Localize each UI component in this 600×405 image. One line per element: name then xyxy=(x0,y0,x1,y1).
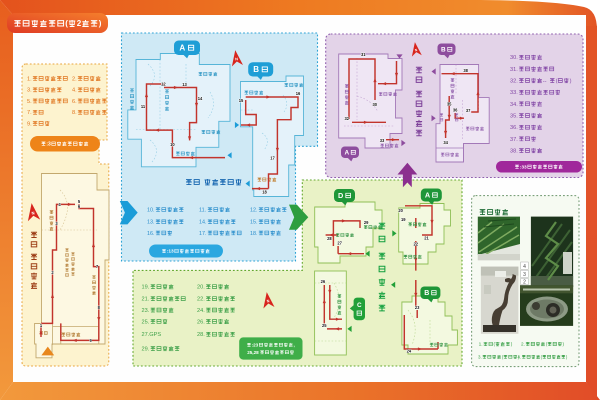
svg-text:16: 16 xyxy=(296,91,301,96)
svg-text::3: :3 xyxy=(46,142,51,148)
svg-text:36: 36 xyxy=(453,107,458,112)
svg-text:8.: 8. xyxy=(72,110,77,116)
svg-text:1.: 1. xyxy=(27,76,32,82)
svg-text:9.: 9. xyxy=(27,121,32,127)
svg-text:1.: 1. xyxy=(479,342,483,348)
svg-text:B: B xyxy=(424,290,429,297)
svg-text:23.: 23. xyxy=(142,308,150,314)
svg-text:38: 38 xyxy=(463,68,468,73)
svg-text:B: B xyxy=(441,47,446,54)
svg-text::13: :13 xyxy=(167,249,174,255)
svg-text:): ) xyxy=(570,79,572,85)
svg-text:34.: 34. xyxy=(510,102,518,108)
svg-text:17: 17 xyxy=(270,156,275,161)
svg-text:35: 35 xyxy=(447,101,452,106)
svg-text:30.: 30. xyxy=(510,55,518,61)
svg-text:4.: 4. xyxy=(72,88,77,94)
svg-text:6.: 6. xyxy=(72,99,77,105)
svg-text:(: ( xyxy=(556,79,558,85)
svg-text:14: 14 xyxy=(198,96,203,101)
svg-text:20: 20 xyxy=(398,208,403,213)
svg-text:4: 4 xyxy=(523,264,526,270)
svg-text:13.: 13. xyxy=(147,220,155,226)
svg-text:18.: 18. xyxy=(250,231,258,237)
svg-text:12: 12 xyxy=(161,82,166,87)
svg-text:32: 32 xyxy=(345,116,350,121)
svg-text:38.: 38. xyxy=(510,149,518,155)
svg-text::33: :33 xyxy=(520,165,527,171)
svg-text:29: 29 xyxy=(364,220,369,225)
svg-text:(: ( xyxy=(65,19,68,28)
svg-text:23: 23 xyxy=(415,305,420,310)
svg-text:33.: 33. xyxy=(510,90,518,96)
svg-text:7.: 7. xyxy=(27,110,32,116)
svg-text:25: 25 xyxy=(322,323,327,328)
svg-text:,: , xyxy=(294,343,295,348)
svg-text:25.: 25. xyxy=(142,319,150,325)
svg-text:37: 37 xyxy=(466,108,471,113)
svg-text:16.: 16. xyxy=(147,231,155,237)
svg-text:36.: 36. xyxy=(510,125,518,131)
svg-text:35.: 35. xyxy=(510,114,518,120)
svg-text:34: 34 xyxy=(443,140,448,145)
svg-text:3: 3 xyxy=(523,272,526,278)
svg-text:): ) xyxy=(99,19,102,28)
svg-text:C: C xyxy=(357,302,362,309)
svg-text:22: 22 xyxy=(414,242,419,247)
svg-text:2.: 2. xyxy=(521,342,525,347)
svg-text:13: 13 xyxy=(182,82,187,87)
svg-text:10: 10 xyxy=(170,142,175,147)
svg-text:5.: 5. xyxy=(27,99,32,105)
svg-text:32.: 32. xyxy=(510,79,518,85)
svg-text:27.GPS: 27.GPS xyxy=(142,332,162,338)
svg-text:A: A xyxy=(425,191,431,200)
svg-text:19: 19 xyxy=(401,217,406,222)
svg-text:29.: 29. xyxy=(142,347,150,353)
svg-text:3.: 3. xyxy=(478,354,482,359)
svg-text:4.: 4. xyxy=(518,354,522,359)
svg-text:B: B xyxy=(253,65,259,74)
svg-text:26.: 26. xyxy=(197,319,205,325)
svg-text:17.: 17. xyxy=(199,231,207,237)
svg-text:31.: 31. xyxy=(510,67,518,73)
svg-text:31: 31 xyxy=(361,52,366,57)
svg-text:26: 26 xyxy=(321,279,326,284)
svg-text:2: 2 xyxy=(523,280,526,286)
svg-text:22.: 22. xyxy=(197,297,205,303)
svg-text:12.: 12. xyxy=(250,207,258,213)
svg-text:15: 15 xyxy=(239,98,244,103)
svg-text:24: 24 xyxy=(407,349,412,354)
svg-text:A: A xyxy=(344,150,349,157)
svg-text:10.: 10. xyxy=(147,207,155,213)
svg-text:15.: 15. xyxy=(250,220,258,226)
svg-text::23: :23 xyxy=(252,343,259,348)
svg-text:3.: 3. xyxy=(27,88,32,94)
svg-text:33: 33 xyxy=(380,138,385,143)
svg-text:11: 11 xyxy=(141,104,146,109)
svg-text:21: 21 xyxy=(424,236,429,241)
svg-text:25,28: 25,28 xyxy=(247,350,259,355)
svg-text:2.: 2. xyxy=(72,76,77,82)
svg-text:14.: 14. xyxy=(199,220,207,226)
svg-text:30: 30 xyxy=(373,102,378,107)
svg-text:28: 28 xyxy=(327,236,332,241)
svg-text:11.: 11. xyxy=(199,207,206,213)
svg-text:27: 27 xyxy=(337,240,342,245)
svg-text:18: 18 xyxy=(262,190,267,195)
svg-text:--: -- xyxy=(543,79,547,85)
svg-text:2: 2 xyxy=(77,19,82,28)
svg-text:28.: 28. xyxy=(197,332,205,338)
svg-text:A: A xyxy=(179,44,185,53)
svg-text:24.: 24. xyxy=(197,308,205,314)
svg-text:20.: 20. xyxy=(197,285,205,291)
svg-text:37.: 37. xyxy=(510,137,518,143)
svg-text:D: D xyxy=(338,191,343,200)
svg-text:19.: 19. xyxy=(142,285,150,291)
svg-text:21.: 21. xyxy=(142,297,150,303)
